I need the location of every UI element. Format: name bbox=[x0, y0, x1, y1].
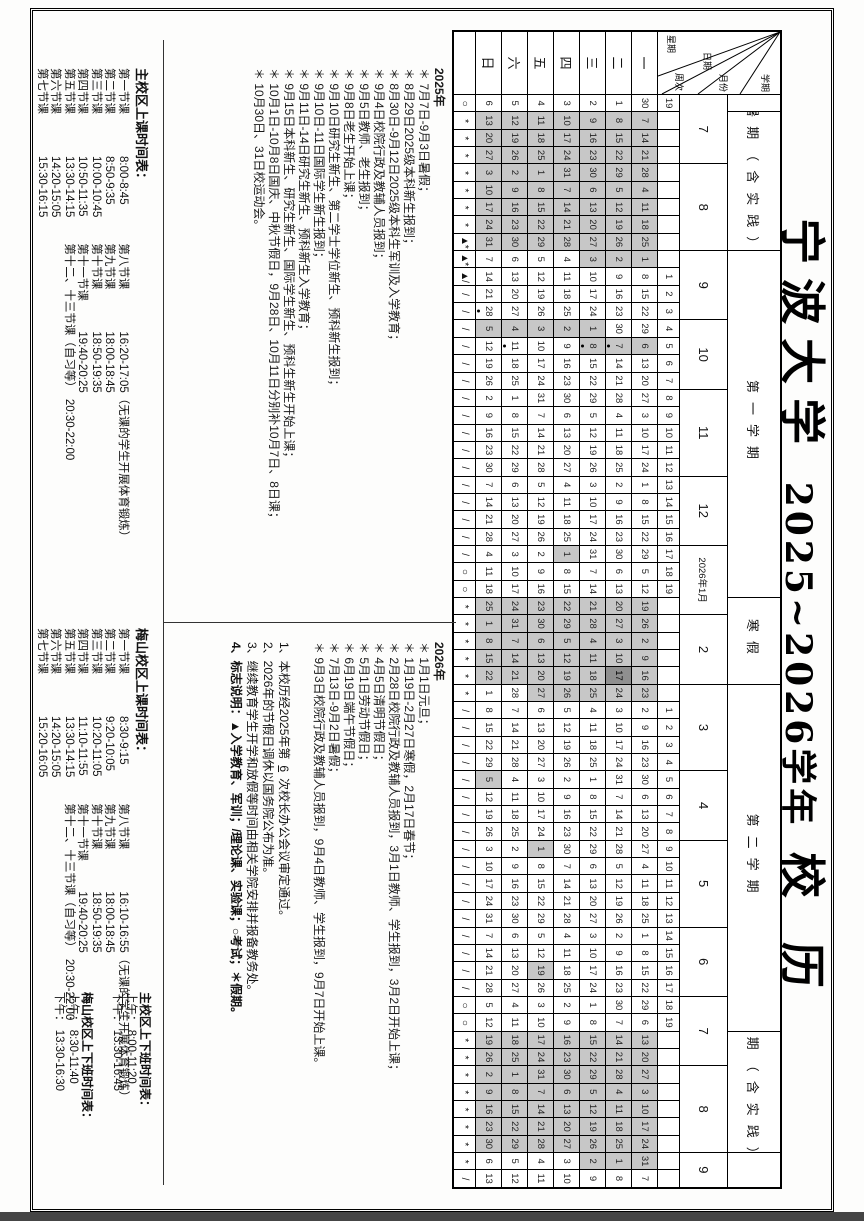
date-cell: 7 bbox=[528, 406, 554, 423]
date-cell: 6 bbox=[580, 857, 606, 874]
date-cell: 21 bbox=[528, 1117, 554, 1134]
month-cell: 11 bbox=[680, 389, 728, 476]
period-time: 13:30-14:15 bbox=[63, 716, 75, 777]
date-cell: 18 bbox=[580, 666, 606, 683]
date-cell: 24 bbox=[606, 753, 632, 770]
week-number-cell: 10 bbox=[658, 857, 680, 874]
date-cell: 17 bbox=[476, 198, 502, 215]
notes-horizontal-divider bbox=[163, 40, 164, 1185]
week-number-cell: 10 bbox=[658, 424, 680, 441]
date-cell: 23 bbox=[580, 146, 606, 163]
month-cell: 5 bbox=[680, 840, 728, 927]
date-cell: 7 bbox=[580, 562, 606, 579]
makeup-class-dot bbox=[477, 310, 480, 313]
date-cell: 17 bbox=[580, 285, 606, 302]
date-cell: 19 bbox=[580, 441, 606, 458]
period-label: 第七节课 bbox=[35, 628, 49, 716]
date-cell: 11 bbox=[554, 944, 580, 961]
date-cell: 21 bbox=[606, 372, 632, 389]
legend-label: 4、标志说明： bbox=[229, 642, 243, 721]
week-number-cell bbox=[658, 181, 680, 198]
date-cell: 17 bbox=[580, 961, 606, 978]
date-cell: 19 bbox=[554, 666, 580, 683]
date-cell: 8 bbox=[528, 857, 554, 874]
date-cell: 8 bbox=[502, 406, 528, 423]
date-cell: 2 bbox=[554, 996, 580, 1013]
note-line: ＊ 9月5日教师、老生报到； bbox=[356, 68, 371, 613]
period-row: 第十节课18:50-19:35 bbox=[89, 243, 103, 542]
period-time: 18:50-19:35 bbox=[90, 891, 102, 952]
week-number-cell: 3 bbox=[658, 302, 680, 319]
period-row: 第十一节课19:40-20:25 bbox=[75, 243, 89, 542]
period-time: 8:00-8:45 bbox=[117, 156, 129, 205]
week-number-cell bbox=[658, 215, 680, 232]
date-cell: 27 bbox=[632, 840, 658, 857]
date-cell: 9 bbox=[554, 337, 580, 354]
date-cell: 23 bbox=[502, 892, 528, 909]
symbol-cell: * bbox=[454, 163, 476, 180]
date-cell: 8 bbox=[606, 111, 632, 128]
main-campus-work-hours-rows: 上午： 8:00-11:20下午： 13:30-16:45 bbox=[110, 992, 138, 1187]
date-cell: 1 bbox=[606, 94, 632, 111]
date-cell: 5 bbox=[606, 857, 632, 874]
date-cell: 18 bbox=[632, 892, 658, 909]
symbol-cell: / bbox=[454, 1169, 476, 1186]
week-number-cell: 17 bbox=[658, 545, 680, 562]
date-cell: 8 bbox=[632, 493, 658, 510]
date-cell: 13 bbox=[632, 354, 658, 371]
legend-note: 4、标志说明：▲入学教育、军训；/理论课、实验课；○考试；＊假期。 bbox=[228, 642, 244, 1182]
date-cell: 17 bbox=[554, 129, 580, 146]
date-cell: 13 bbox=[606, 580, 632, 597]
date-cell: 10 bbox=[606, 649, 632, 666]
date-cell: 8 bbox=[632, 267, 658, 284]
period-row: 第五节课13:30-14:15 bbox=[62, 628, 76, 777]
date-cell: 24 bbox=[632, 458, 658, 475]
date-cell: 1 bbox=[606, 1152, 632, 1169]
date-cell: 16 bbox=[606, 961, 632, 978]
date-cell: 28 bbox=[502, 753, 528, 770]
symbol-cell: * bbox=[454, 1152, 476, 1169]
approval-note-pre: 1、本校历经2025年第 bbox=[277, 642, 291, 759]
corner-semester-label: 学期 bbox=[759, 74, 772, 92]
date-cell: 23 bbox=[632, 753, 658, 770]
date-cell: 17 bbox=[606, 736, 632, 753]
date-cell: 20 bbox=[502, 961, 528, 978]
notes-2026-items: ＊ 1月1日元旦；＊ 1月19日-2月27日寒假，2月17日春节；＊ 2月28日… bbox=[311, 642, 431, 1182]
date-cell: 18 bbox=[476, 580, 502, 597]
date-cell: 28 bbox=[476, 302, 502, 319]
week-number-cell: 14 bbox=[658, 927, 680, 944]
date-cell: 18 bbox=[502, 805, 528, 822]
period-time: 15:30-16:15 bbox=[36, 156, 48, 217]
date-cell: 15 bbox=[632, 285, 658, 302]
date-cell: 31 bbox=[606, 770, 632, 787]
period-time: 19:40-20:25 bbox=[77, 331, 89, 392]
date-cell: 11 bbox=[606, 424, 632, 441]
date-cell: 13 bbox=[580, 874, 606, 891]
symbol-cell: / bbox=[454, 458, 476, 475]
week-number-cell: 7 bbox=[658, 805, 680, 822]
notes-2026: 2026年 ＊ 1月1日元旦；＊ 1月19日-2月27日寒假，2月17日春节；＊… bbox=[311, 642, 446, 1182]
period-row: 第一节课8:00-8:45 bbox=[116, 68, 130, 217]
date-cell: 31 bbox=[502, 614, 528, 631]
date-cell: 3 bbox=[476, 840, 502, 857]
symbol-cell: * bbox=[454, 649, 476, 666]
note-line: ＊ 6月19日端午节假日； bbox=[341, 642, 356, 1182]
date-cell: 25 bbox=[580, 753, 606, 770]
date-cell: 17 bbox=[502, 580, 528, 597]
date-cell: 18 bbox=[554, 285, 580, 302]
weekday-label: 六 bbox=[502, 32, 528, 94]
note-line: ＊ 2月28日校院行政及教辅人员报到，3月1日教师、学生报到，3月2日开始上课； bbox=[386, 642, 401, 1182]
date-cell: 21 bbox=[502, 666, 528, 683]
date-cell: 30 bbox=[580, 163, 606, 180]
date-cell: 21 bbox=[476, 285, 502, 302]
week-number-cell: 11 bbox=[658, 441, 680, 458]
symbol-cell: ▲* bbox=[454, 250, 476, 267]
date-cell: 2 bbox=[580, 94, 606, 111]
date-cell: 12 bbox=[580, 424, 606, 441]
period-row: 第七节课15:30-16:15 bbox=[35, 68, 49, 217]
note-line: ＊ 7月7日-9月3日暑假； bbox=[416, 68, 431, 613]
date-cell: 22 bbox=[476, 736, 502, 753]
date-cell: 8 bbox=[502, 1083, 528, 1100]
date-cell: 5 bbox=[502, 1152, 528, 1169]
date-cell: 26 bbox=[580, 458, 606, 475]
makeup-class-dot bbox=[581, 344, 584, 347]
meishan-campus-work-hours: 梅山校区上下班时间表： 上午： 8:30-11:40下午： 13:30-16:3… bbox=[52, 992, 94, 1187]
date-cell: 10 bbox=[528, 788, 554, 805]
date-cell: 9 bbox=[580, 1169, 606, 1186]
period-time: 13:30-14:15 bbox=[63, 156, 75, 217]
corner-header-cell: 学期 月份 日期 周次 星期 bbox=[658, 32, 780, 94]
date-cell: 13 bbox=[554, 1100, 580, 1117]
period-time: 19:40-20:25 bbox=[77, 891, 89, 952]
date-cell: 20 bbox=[580, 892, 606, 909]
date-cell: 6 bbox=[632, 788, 658, 805]
symbol-cell: / bbox=[454, 822, 476, 839]
month-cell: 9 bbox=[680, 250, 728, 319]
date-cell: 12 bbox=[528, 493, 554, 510]
date-cell: 8 bbox=[606, 1169, 632, 1186]
calendar-table: 学期 月份 日期 周次 星期 暑期（含实践）第一学期寒假第二学期暑期（含实践）7… bbox=[452, 30, 782, 1189]
week-number-cell: 6 bbox=[658, 788, 680, 805]
date-cell: 7 bbox=[528, 1083, 554, 1100]
period-time: 16:20-17:05（无课的学生开展体育锻炼） bbox=[117, 331, 129, 542]
date-cell: 16 bbox=[606, 510, 632, 527]
month-cell: 3 bbox=[680, 684, 728, 771]
date-cell: 5 bbox=[476, 319, 502, 336]
period-label: 第十节课 bbox=[89, 803, 103, 891]
date-cell: 21 bbox=[502, 736, 528, 753]
date-cell: 25 bbox=[554, 528, 580, 545]
semester-cell: 暑期（含实践） bbox=[728, 1031, 780, 1152]
date-cell: 2 bbox=[554, 770, 580, 787]
date-cell: 1 bbox=[580, 319, 606, 336]
date-cell: 24 bbox=[502, 597, 528, 614]
note-line: ＊ 9月10日-11日国际学生新生报到； bbox=[311, 68, 326, 613]
date-cell: 13 bbox=[476, 111, 502, 128]
date-cell: 14 bbox=[476, 267, 502, 284]
date-cell: 14 bbox=[476, 944, 502, 961]
main-campus-work-hours: 主校区上下班时间表： 上午： 8:00-11:20下午： 13:30-16:45 bbox=[110, 992, 152, 1187]
week-number-cell bbox=[658, 129, 680, 146]
date-cell: 13 bbox=[580, 198, 606, 215]
date-cell: 11 bbox=[632, 874, 658, 891]
period-label: 第十一节课 bbox=[75, 243, 89, 331]
general-notes: 1、本校历经2025年第6次校长办公会议审定通过。 2、2026年的节假日调休以… bbox=[228, 642, 292, 1182]
symbol-cell: / bbox=[454, 944, 476, 961]
symbol-cell: / bbox=[454, 770, 476, 787]
date-cell: 10 bbox=[528, 1013, 554, 1030]
date-cell: 24 bbox=[476, 215, 502, 232]
week-number-cell: 1 bbox=[658, 267, 680, 284]
symbol-cell: / bbox=[454, 493, 476, 510]
note-line: ＊ 1月1日元旦； bbox=[416, 642, 431, 1182]
weekday-label: 五 bbox=[528, 32, 554, 94]
date-cell: 5 bbox=[554, 701, 580, 718]
date-cell: 15 bbox=[580, 805, 606, 822]
date-cell: 12 bbox=[502, 1169, 528, 1186]
date-cell: 20 bbox=[502, 510, 528, 527]
date-cell: 2 bbox=[606, 250, 632, 267]
date-cell: 31 bbox=[632, 1152, 658, 1169]
date-cell: 5 bbox=[502, 94, 528, 111]
date-cell: 14 bbox=[554, 874, 580, 891]
symbol-cell: * bbox=[454, 1083, 476, 1100]
date-cell: 1 bbox=[632, 476, 658, 493]
date-cell: 6 bbox=[580, 181, 606, 198]
date-cell: 14 bbox=[580, 580, 606, 597]
date-cell: 12 bbox=[502, 111, 528, 128]
date-cell: 27 bbox=[580, 909, 606, 926]
date-cell: 21 bbox=[632, 146, 658, 163]
symbol-cell: * bbox=[454, 632, 476, 649]
date-cell: 8 bbox=[580, 337, 606, 354]
date-cell: 15 bbox=[632, 510, 658, 527]
date-cell: 5 bbox=[580, 1083, 606, 1100]
symbol-cell: / bbox=[454, 805, 476, 822]
symbol-cell: / bbox=[454, 979, 476, 996]
date-cell: 7 bbox=[476, 250, 502, 267]
date-cell: 21 bbox=[476, 510, 502, 527]
date-cell: 19 bbox=[606, 215, 632, 232]
date-cell: 29 bbox=[528, 909, 554, 926]
date-cell: 4 bbox=[502, 996, 528, 1013]
date-cell: 30 bbox=[632, 770, 658, 787]
period-label: 第三节课 bbox=[89, 628, 103, 716]
period-row: 第一节课8:30-9:15 bbox=[116, 628, 130, 777]
date-cell: 14 bbox=[606, 354, 632, 371]
symbol-cell: ○ bbox=[454, 996, 476, 1013]
week-number-cell: 16 bbox=[658, 961, 680, 978]
date-cell: 25 bbox=[502, 822, 528, 839]
date-cell: 14 bbox=[502, 718, 528, 735]
date-cell: 28 bbox=[632, 163, 658, 180]
date-cell: 31 bbox=[476, 233, 502, 250]
date-cell: 9 bbox=[476, 406, 502, 423]
week-number-cell: 14 bbox=[658, 493, 680, 510]
date-cell: 29 bbox=[554, 614, 580, 631]
symbol-cell: * bbox=[454, 1100, 476, 1117]
month-cell: 2026年1月 bbox=[680, 545, 728, 614]
date-cell: 13 bbox=[528, 649, 554, 666]
date-cell: 16 bbox=[554, 805, 580, 822]
date-cell: 25 bbox=[528, 146, 554, 163]
date-cell: 16 bbox=[632, 736, 658, 753]
date-cell: 3 bbox=[580, 927, 606, 944]
symbol-cell: / bbox=[454, 909, 476, 926]
work-hours-row: 下午： 13:30-16:45 bbox=[110, 992, 124, 1187]
period-label: 第七节课 bbox=[35, 68, 49, 156]
date-cell: 4 bbox=[502, 319, 528, 336]
date-cell: 9 bbox=[502, 181, 528, 198]
period-time: 14:20-15:05 bbox=[50, 156, 62, 217]
date-cell: 4 bbox=[606, 406, 632, 423]
date-cell: 11 bbox=[580, 718, 606, 735]
month-cell: 2 bbox=[680, 614, 728, 683]
semester-cell bbox=[728, 94, 780, 111]
symbol-cell: / bbox=[454, 736, 476, 753]
date-cell: 19 bbox=[554, 736, 580, 753]
note-line: ＊ 4月5日清明节假日； bbox=[371, 642, 386, 1182]
date-cell: 15 bbox=[580, 1031, 606, 1048]
date-cell: 3 bbox=[528, 319, 554, 336]
date-cell: 5 bbox=[632, 562, 658, 579]
period-label: 第四节课 bbox=[75, 68, 89, 156]
week-number-cell bbox=[658, 1031, 680, 1048]
date-cell: 28 bbox=[606, 840, 632, 857]
date-cell: 11 bbox=[580, 649, 606, 666]
date-cell: 23 bbox=[632, 684, 658, 701]
date-cell: 24 bbox=[580, 528, 606, 545]
date-cell: 11 bbox=[502, 1013, 528, 1030]
week-number-cell bbox=[658, 684, 680, 701]
week-number-cell: 1 bbox=[658, 701, 680, 718]
period-label: 第四节课 bbox=[75, 628, 89, 716]
week-number-cell bbox=[658, 233, 680, 250]
date-cell: 12 bbox=[580, 1100, 606, 1117]
week-number-cell: 11 bbox=[658, 874, 680, 891]
date-cell: 22 bbox=[632, 979, 658, 996]
date-cell: 23 bbox=[476, 1117, 502, 1134]
date-cell: 23 bbox=[606, 302, 632, 319]
date-cell: 2 bbox=[528, 545, 554, 562]
period-label: 第八节课 bbox=[116, 803, 130, 891]
period-label: 第九节课 bbox=[102, 243, 116, 331]
date-cell: 11 bbox=[606, 1100, 632, 1117]
date-cell: 20 bbox=[502, 285, 528, 302]
date-cell: 2 bbox=[580, 1152, 606, 1169]
week-number-cell: 12 bbox=[658, 458, 680, 475]
date-cell: 27 bbox=[502, 528, 528, 545]
date-cell: 23 bbox=[554, 1048, 580, 1065]
date-cell: 28 bbox=[580, 614, 606, 631]
date-cell: 29 bbox=[502, 1135, 528, 1152]
period-label: 第十一节课 bbox=[75, 803, 89, 891]
month-cell: 10 bbox=[680, 319, 728, 388]
work-hours-row: 下午： 13:30-16:30 bbox=[52, 992, 66, 1187]
period-row: 第三节课10:20-11:05 bbox=[89, 628, 103, 777]
date-cell: 5 bbox=[554, 632, 580, 649]
date-cell: 17 bbox=[528, 805, 554, 822]
month-cell: 7 bbox=[680, 94, 728, 163]
date-cell: 4 bbox=[580, 701, 606, 718]
date-cell: 23 bbox=[554, 822, 580, 839]
corner-month-label: 月份 bbox=[717, 74, 730, 92]
date-cell: 12 bbox=[476, 337, 502, 354]
semester-cell: 暑期（含实践） bbox=[728, 111, 780, 250]
period-time: 18:00-18:45 bbox=[104, 891, 116, 952]
period-label: 第一节课 bbox=[116, 68, 130, 156]
main-campus-periods-col1: 第一节课8:00-8:45第二节课8:50-9:35第三节课10:00-10:4… bbox=[35, 68, 130, 217]
date-cell: 5 bbox=[476, 996, 502, 1013]
meishan-campus-periods-col1: 第一节课8:30-9:15第二节课9:20-10:05第三节课10:20-11:… bbox=[35, 628, 130, 777]
date-cell: 16 bbox=[528, 580, 554, 597]
date-cell: 9 bbox=[632, 649, 658, 666]
semester-cell bbox=[728, 1152, 780, 1187]
period-time: 9:20-10:05 bbox=[104, 716, 116, 771]
date-cell: 3 bbox=[502, 545, 528, 562]
period-time: 10:20-11:05 bbox=[90, 716, 102, 777]
work-hours-row: 上午： 8:30-11:40 bbox=[66, 992, 80, 1187]
week-number-cell: 12 bbox=[658, 892, 680, 909]
date-cell: 21 bbox=[606, 1048, 632, 1065]
date-cell: 15 bbox=[606, 129, 632, 146]
date-cell: 13 bbox=[632, 805, 658, 822]
symbol-cell: / bbox=[454, 528, 476, 545]
approval-note: 1、本校历经2025年第6次校长办公会议审定通过。 bbox=[276, 642, 292, 1182]
week-number-cell bbox=[658, 1048, 680, 1065]
period-row: 第八节课16:20-17:05（无课的学生开展体育锻炼） bbox=[116, 243, 130, 542]
date-cell: 29 bbox=[632, 996, 658, 1013]
date-cell: 14 bbox=[502, 649, 528, 666]
date-cell: 7 bbox=[606, 788, 632, 805]
date-cell: 26 bbox=[476, 372, 502, 389]
symbol-cell: / bbox=[454, 788, 476, 805]
date-cell: 9 bbox=[554, 788, 580, 805]
date-cell: 15 bbox=[528, 198, 554, 215]
period-time: 8:30-9:15 bbox=[117, 716, 129, 765]
symbol-cell: ▲* bbox=[454, 233, 476, 250]
date-cell: 1 bbox=[554, 545, 580, 562]
date-cell: 18 bbox=[502, 1031, 528, 1048]
date-cell: 22 bbox=[606, 146, 632, 163]
notes-2025-items: ＊ 7月7日-9月3日暑假；＊ 8月29日2025级本科新生报到；＊ 8月30日… bbox=[251, 68, 431, 613]
date-cell: 14 bbox=[606, 805, 632, 822]
date-cell: 1 bbox=[502, 389, 528, 406]
note-line: ＊ 8月30日-9月12日2025级本科生军训及入学教育； bbox=[386, 68, 401, 613]
date-cell: 22 bbox=[580, 1048, 606, 1065]
date-cell: 17 bbox=[632, 441, 658, 458]
date-cell: 2 bbox=[606, 476, 632, 493]
date-cell: 21 bbox=[476, 961, 502, 978]
date-cell: 12 bbox=[554, 649, 580, 666]
note-line: ＊ 9月3日校院行政及教辅人员报到，9月4日教师、学生报到，9月7日开始上课。 bbox=[311, 642, 326, 1182]
month-cell: 8 bbox=[680, 1065, 728, 1152]
period-row: 第十二、十三节课（自习等）20:30-22:00 bbox=[62, 243, 76, 542]
date-cell: 10 bbox=[554, 111, 580, 128]
date-cell: 6 bbox=[476, 1152, 502, 1169]
date-cell: 6 bbox=[476, 94, 502, 111]
period-time: 8:50-9:35 bbox=[104, 156, 116, 205]
date-cell: 2 bbox=[632, 701, 658, 718]
month-cell: 9 bbox=[680, 1152, 728, 1187]
date-cell: 24 bbox=[476, 892, 502, 909]
date-cell: 25 bbox=[606, 1135, 632, 1152]
date-cell: 21 bbox=[606, 822, 632, 839]
